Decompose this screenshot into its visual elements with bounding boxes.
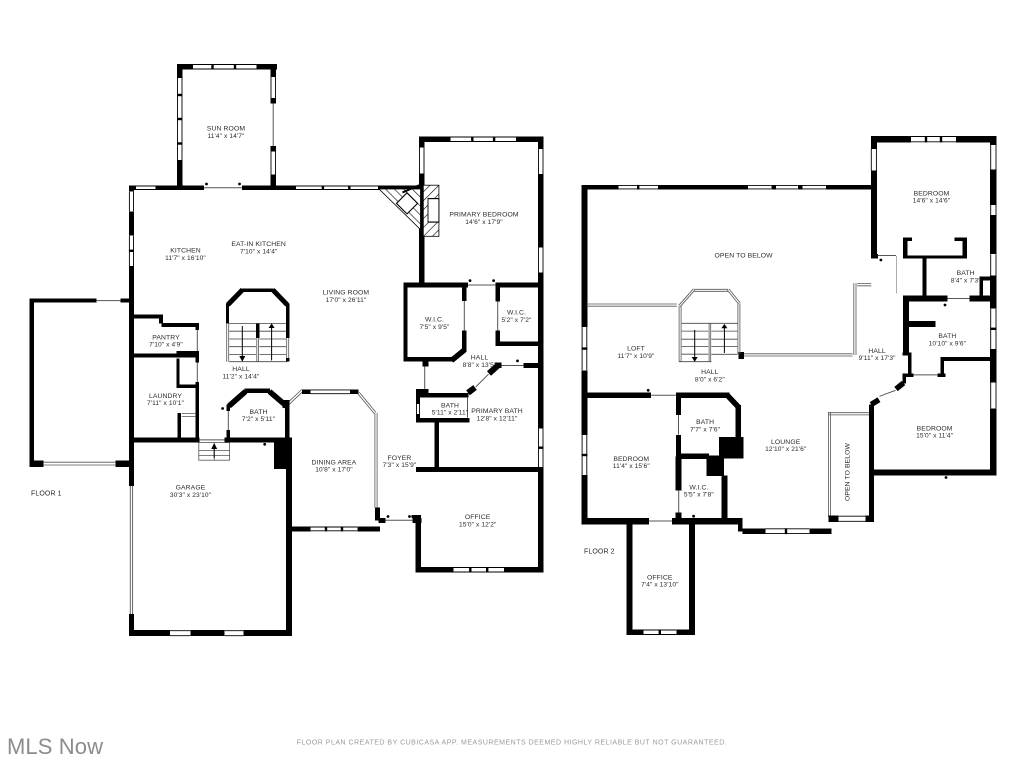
svg-text:7'10" x 14'4": 7'10" x 14'4" [240,248,278,255]
svg-text:12'10" x 21'6": 12'10" x 21'6" [765,446,807,453]
svg-text:12'8" x 12'11": 12'8" x 12'11" [477,416,518,423]
svg-text:KITCHEN: KITCHEN [170,248,201,255]
svg-text:11'7" x 16'10": 11'7" x 16'10" [165,255,206,262]
svg-text:PRIMARY BATH: PRIMARY BATH [471,408,522,415]
svg-text:LOFT: LOFT [627,346,645,353]
svg-text:7'7" x 7'6": 7'7" x 7'6" [690,427,720,434]
svg-text:LIVING ROOM: LIVING ROOM [323,290,370,297]
svg-text:15'0" x 11'4": 15'0" x 11'4" [916,433,954,440]
svg-text:W.I.C.: W.I.C. [689,484,708,491]
svg-text:SUN ROOM: SUN ROOM [207,126,245,133]
svg-text:BATH: BATH [441,402,459,409]
svg-text:PANTRY: PANTRY [152,334,180,341]
svg-text:15'0" x 12'2": 15'0" x 12'2" [459,521,497,528]
svg-text:PRIMARY BEDROOM: PRIMARY BEDROOM [449,212,518,219]
svg-text:11'2" x 14'4": 11'2" x 14'4" [223,373,261,380]
svg-text:EAT-IN KITCHEN: EAT-IN KITCHEN [231,241,286,248]
svg-text:LOUNGE: LOUNGE [771,439,801,446]
svg-text:MLS Now: MLS Now [7,734,103,759]
svg-text:DINING AREA: DINING AREA [312,459,357,466]
svg-text:8'4" x 7'3": 8'4" x 7'3" [951,277,981,284]
svg-text:BEDROOM: BEDROOM [613,456,649,463]
svg-text:BEDROOM: BEDROOM [914,190,950,197]
svg-text:7'11" x 10'1": 7'11" x 10'1" [147,400,185,407]
svg-text:HALL: HALL [232,366,250,373]
svg-text:OPEN TO BELOW: OPEN TO BELOW [715,252,774,259]
svg-text:HALL: HALL [471,355,489,362]
svg-text:11'7" x 10'9": 11'7" x 10'9" [618,353,656,360]
svg-text:5'11" x 2'11": 5'11" x 2'11" [432,410,469,417]
svg-text:5'2" x 7'2": 5'2" x 7'2" [502,317,532,324]
svg-text:17'0" x 26'11": 17'0" x 26'11" [326,297,367,304]
svg-text:8'8" x 13'5": 8'8" x 13'5" [463,362,497,369]
svg-text:8'0" x 6'2": 8'0" x 6'2" [695,376,725,383]
svg-text:11'4" x 15'6": 11'4" x 15'6" [613,463,651,470]
svg-text:BATH: BATH [938,333,956,340]
svg-text:7'3" x 15'9": 7'3" x 15'9" [383,462,417,469]
svg-text:9'11" x 17'3": 9'11" x 17'3" [859,355,897,362]
svg-text:W.I.C.: W.I.C. [425,317,444,324]
svg-text:30'3" x 23'10": 30'3" x 23'10" [170,492,212,499]
svg-text:10'8" x 17'0": 10'8" x 17'0" [315,467,353,474]
svg-text:BEDROOM: BEDROOM [917,425,953,432]
svg-text:FLOOR 2: FLOOR 2 [584,548,615,555]
svg-text:OFFICE: OFFICE [465,514,491,521]
svg-text:7'5" x 9'5": 7'5" x 9'5" [420,324,450,331]
svg-text:FLOOR PLAN CREATED BY CUBICASA: FLOOR PLAN CREATED BY CUBICASA APP. MEAS… [297,740,727,747]
svg-text:OFFICE: OFFICE [647,574,673,581]
svg-text:BATH: BATH [249,409,267,416]
svg-text:HALL: HALL [868,348,886,355]
svg-text:W.I.C.: W.I.C. [507,310,526,317]
svg-text:OPEN TO BELOW: OPEN TO BELOW [845,442,852,501]
svg-text:10'10" x 9'6": 10'10" x 9'6" [929,340,967,347]
svg-text:GARAGE: GARAGE [176,485,206,492]
svg-text:BATH: BATH [957,270,975,277]
svg-text:7'4" x 13'10": 7'4" x 13'10" [641,582,679,589]
svg-text:LAUNDRY: LAUNDRY [149,393,182,400]
svg-text:HALL: HALL [701,369,719,376]
svg-text:5'5" x 7'8": 5'5" x 7'8" [684,492,714,499]
svg-text:FOYER: FOYER [388,455,412,462]
svg-text:7'10" x 4'9": 7'10" x 4'9" [149,342,183,349]
svg-text:14'6" x 17'9": 14'6" x 17'9" [465,219,503,226]
svg-text:BATH: BATH [696,419,714,426]
svg-text:14'6" x 14'6": 14'6" x 14'6" [913,198,951,205]
svg-text:FLOOR 1: FLOOR 1 [31,491,62,498]
svg-text:11'4" x 14'7": 11'4" x 14'7" [208,133,246,140]
svg-text:7'2" x 5'11": 7'2" x 5'11" [242,416,276,423]
